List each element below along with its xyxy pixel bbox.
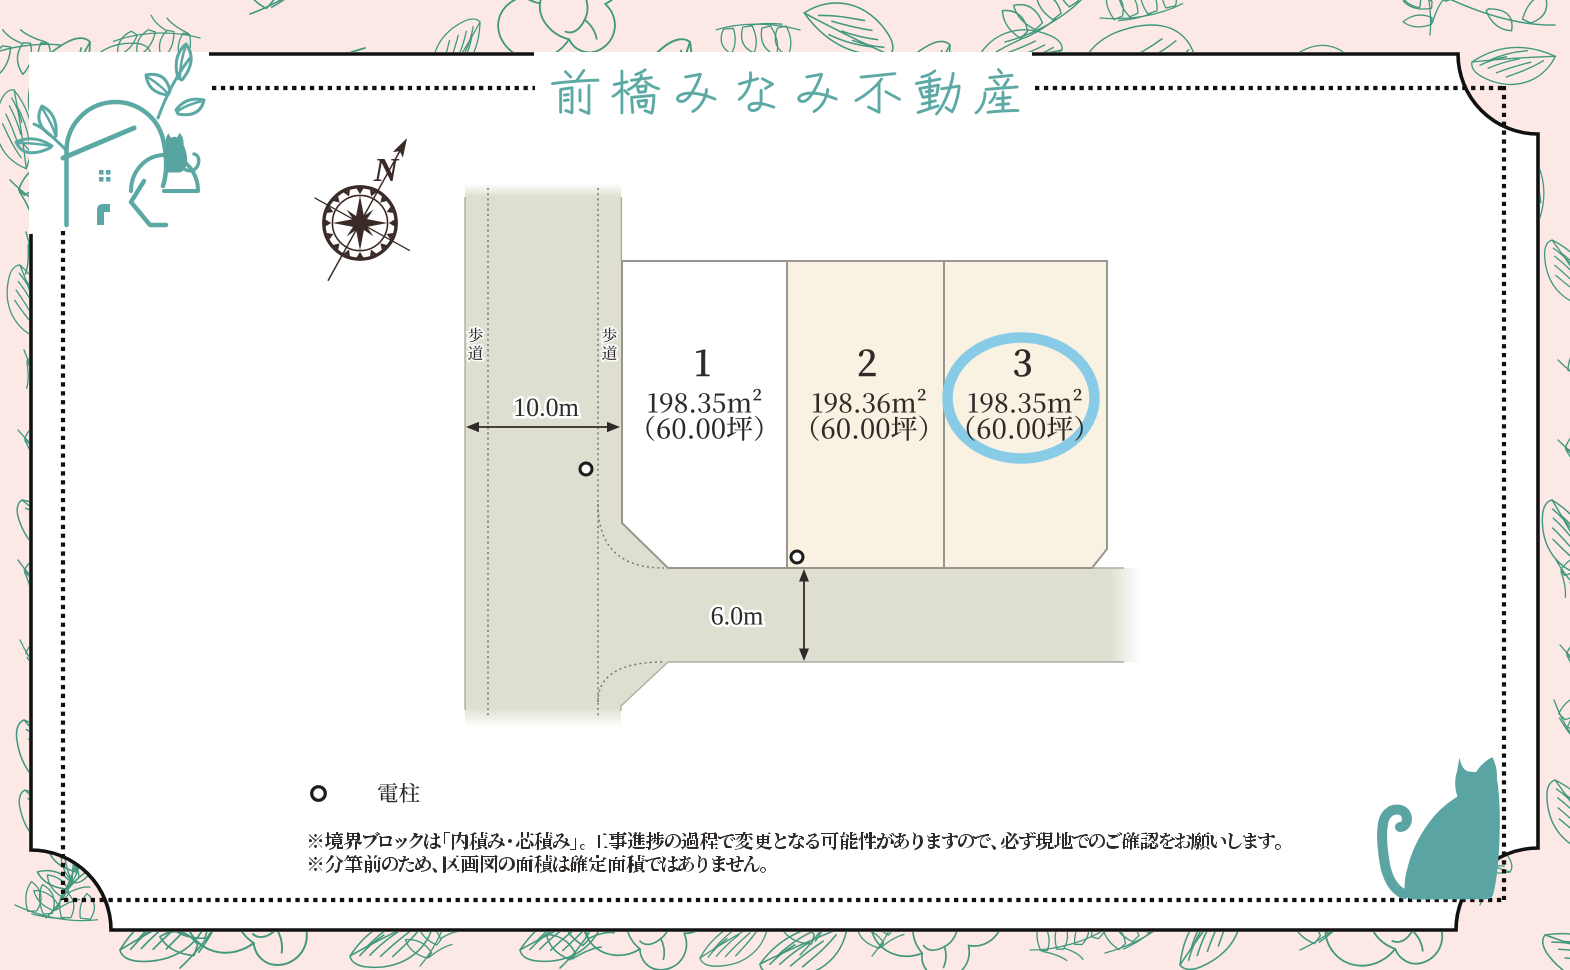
svg-text:10.0m: 10.0m xyxy=(513,393,579,422)
svg-text:6.0m: 6.0m xyxy=(711,602,764,631)
svg-text:N: N xyxy=(373,152,400,189)
